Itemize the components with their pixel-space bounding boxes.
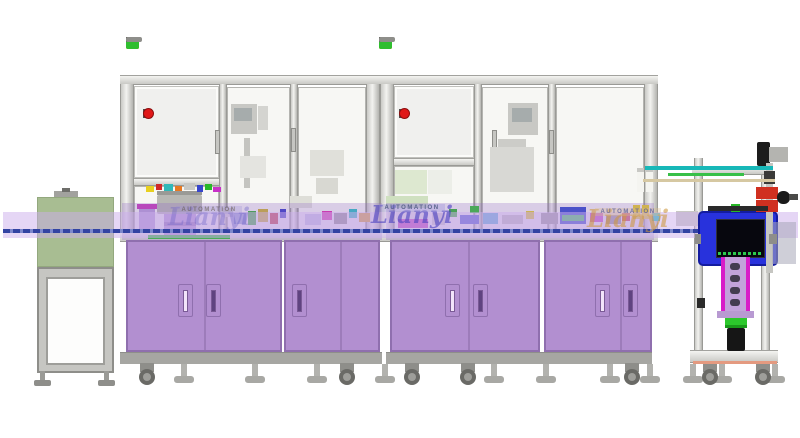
machine-line-render: Lianyi AUTOMATION Lianyi AUTOMATION Lian…: [0, 0, 800, 438]
camera-ring-green: [725, 318, 747, 325]
motor-flange: [769, 147, 788, 162]
teal-rail: [645, 166, 773, 170]
bearing-block: [756, 187, 778, 199]
bracket-hole: [730, 287, 740, 294]
tan-rail: [643, 179, 775, 182]
green-rail: [668, 173, 744, 176]
tab: [769, 234, 777, 244]
salmon-line: [693, 361, 777, 364]
bracket-hole: [730, 275, 740, 282]
bracket-rail: [746, 257, 750, 312]
camera-lens: [727, 328, 745, 351]
post-knob: [697, 298, 705, 308]
tab: [695, 234, 701, 244]
watermark-sub: AUTOMATION: [176, 206, 241, 214]
coupling: [764, 171, 775, 184]
knob-stem: [789, 194, 798, 200]
bracket-hole: [730, 299, 740, 306]
watermark-sub: AUTOMATION: [379, 204, 444, 212]
bracket-hole: [730, 263, 740, 270]
tooth-strip: [708, 206, 768, 211]
bracket-flange: [717, 311, 754, 318]
watermark-sub: AUTOMATION: [595, 208, 660, 216]
